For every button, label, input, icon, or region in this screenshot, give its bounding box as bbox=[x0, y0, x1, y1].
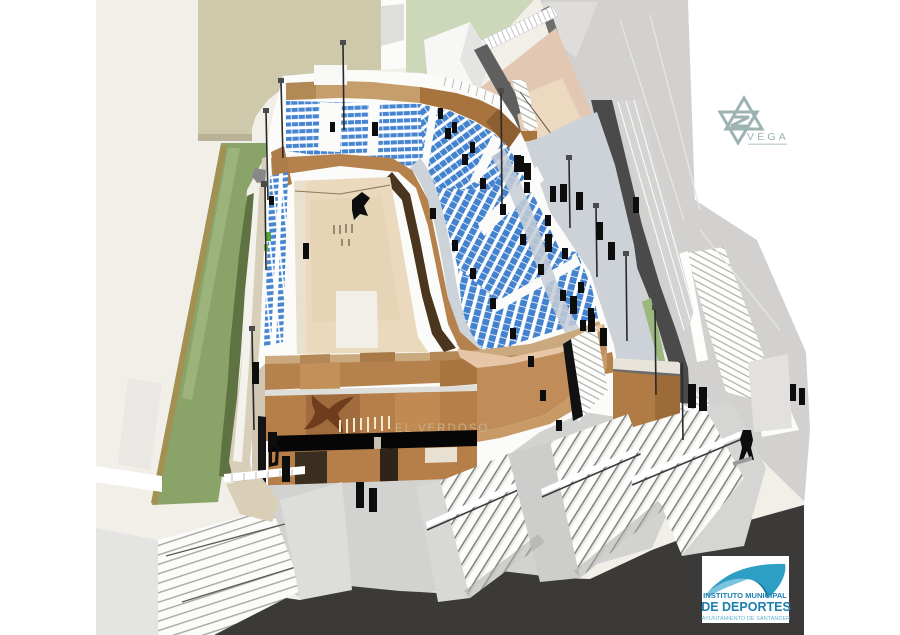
svg-text:AYUNTAMIENTO DE SANTANDER: AYUNTAMIENTO DE SANTANDER bbox=[702, 616, 790, 622]
svg-text:DE DEPORTES: DE DEPORTES bbox=[701, 600, 791, 614]
svg-text:INSTITUTO MUNICIPAL: INSTITUTO MUNICIPAL bbox=[703, 591, 787, 600]
svg-text:VEGA: VEGA bbox=[747, 131, 789, 143]
